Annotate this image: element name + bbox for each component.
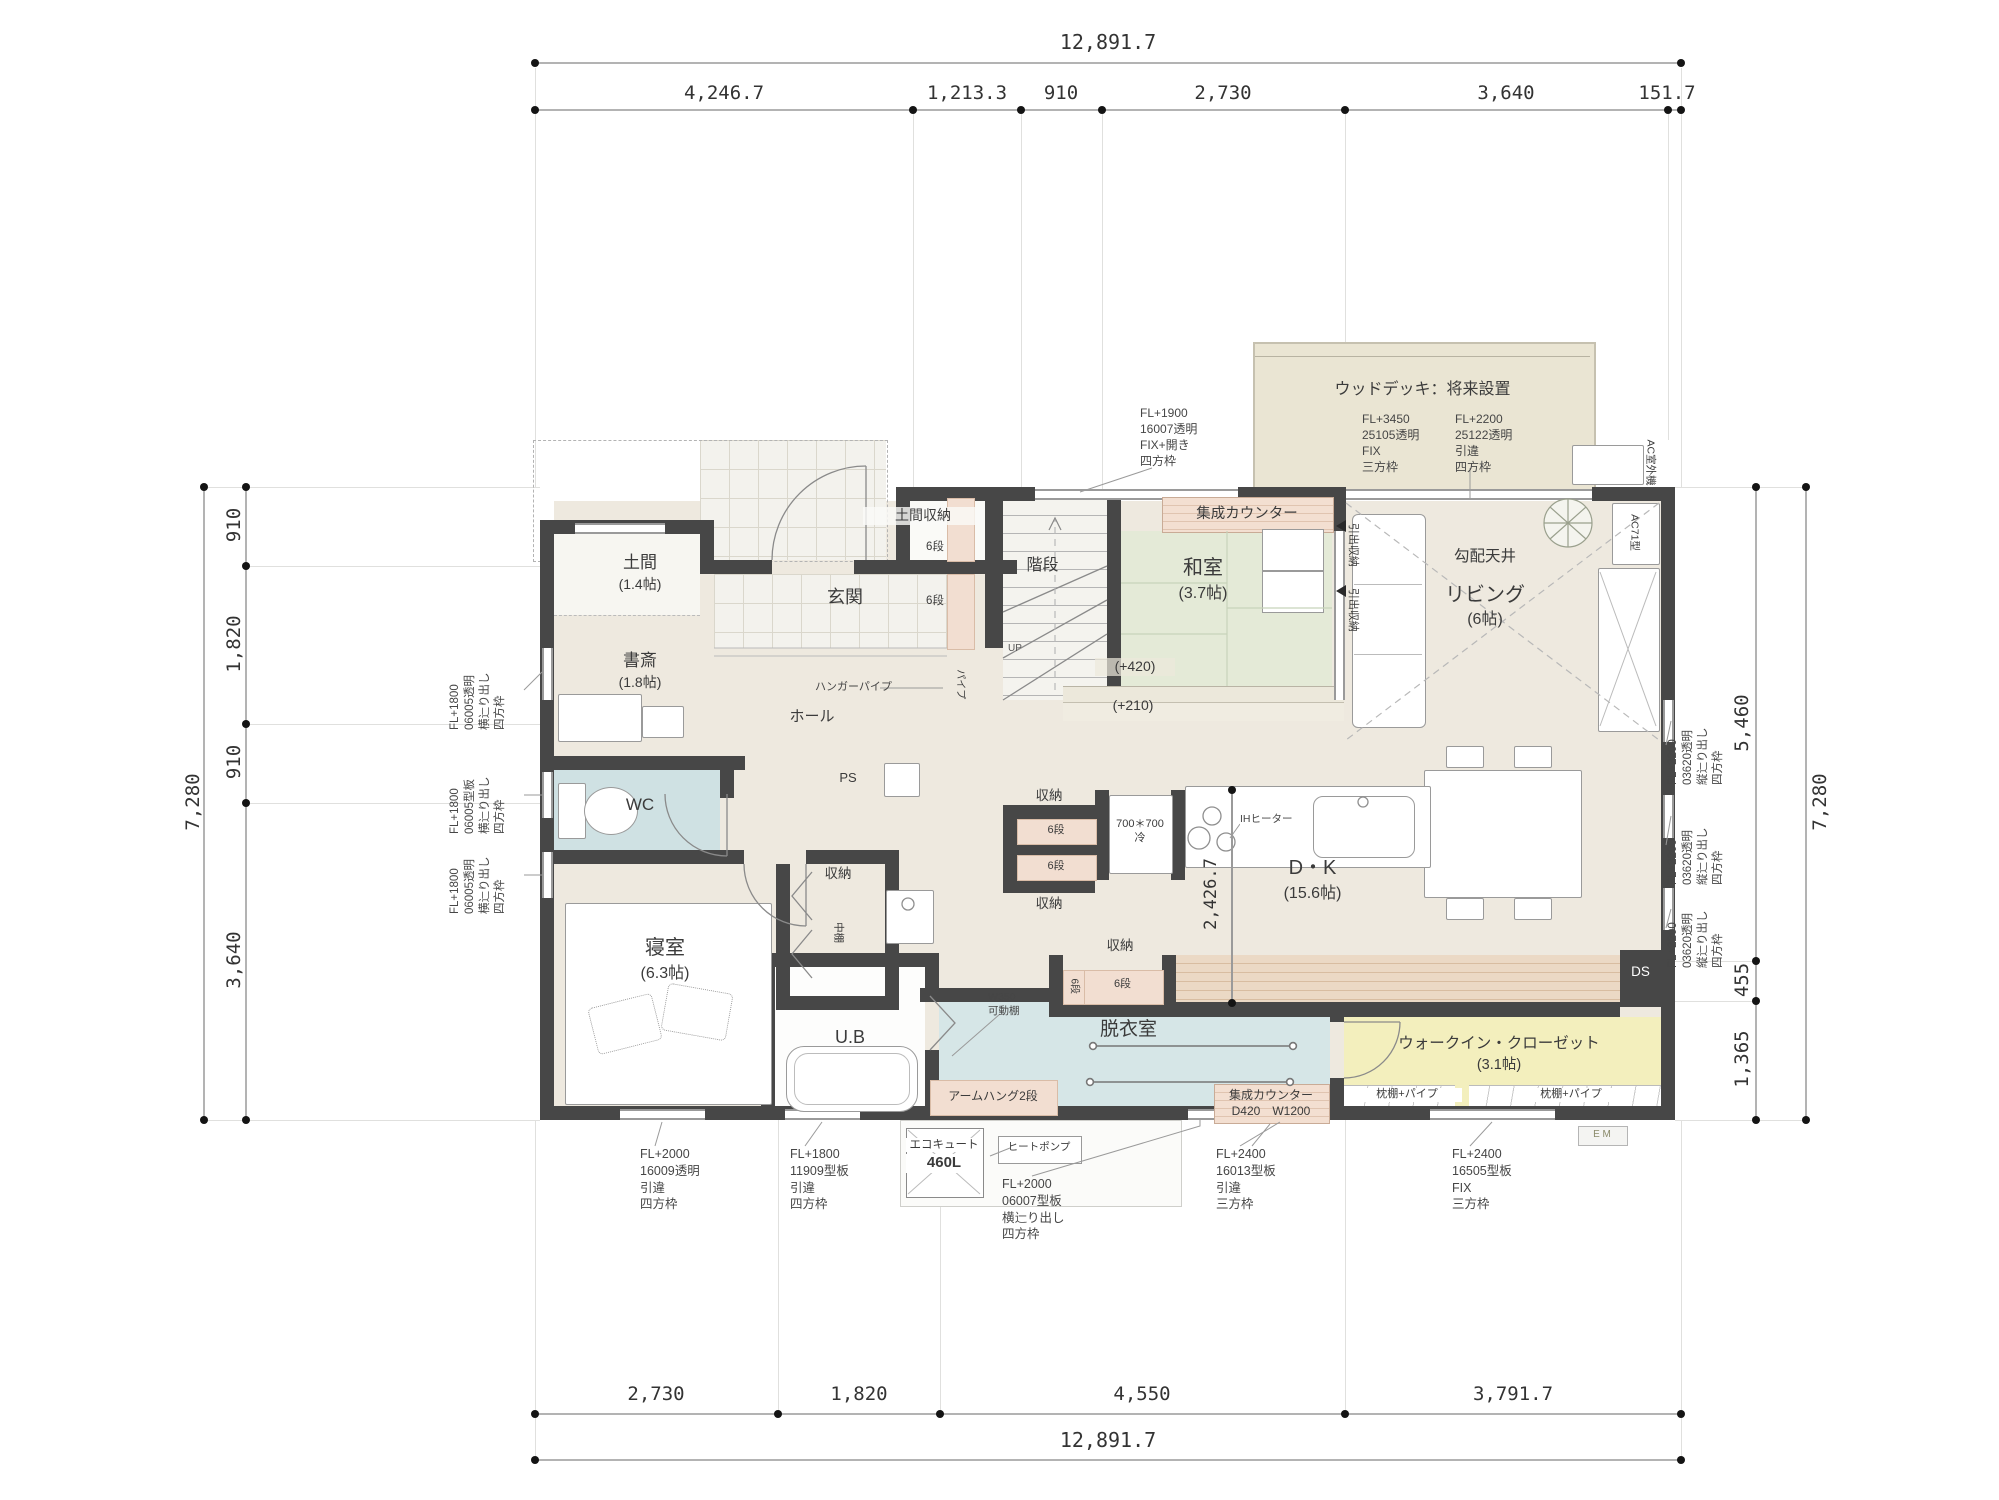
dim-dot [1228,786,1236,794]
window-ann-bottom-3: FL+2000 06007型板 横辷り出し 四方枠 [1002,1176,1065,1243]
naka-shelf-label: 中棚 [831,911,844,955]
deck-window-fix: FL+3450 25105透明 FIX 三方枠 [1362,411,1419,475]
sink-faucet [1358,797,1368,807]
stove-burner-1 [1203,807,1221,825]
closet-bifold-2 [792,930,812,978]
window-ann-bottom-4: FL+2400 16013型板 引違 三方枠 [1216,1146,1276,1213]
drawer-label-2: 引出収納 [1345,582,1359,638]
level-420-label: (+420) [1095,658,1175,676]
ecocute-size: 460L [906,1154,982,1173]
study-label: 書斎 [580,650,700,671]
ac-outdoor-label: AC室外機 [1643,425,1656,501]
heatpump-label: ヒートポンプ [998,1141,1080,1154]
shelf6-doma-storage: 6段 [905,540,965,554]
bedroom-door-arc [744,864,806,926]
leader-w350 [952,1014,1000,1056]
pillow-shelf-right: 枕棚+パイプ [1516,1088,1626,1102]
ecocute-label: エコキュート [906,1138,982,1152]
datsui-label: 脱衣室 [1056,1018,1201,1042]
shelf6-pantry-side: 6段 [1067,969,1080,1003]
doma-size: (1.4帖) [580,576,700,594]
ih-label: IHヒーター [1240,812,1293,826]
hanger-pipe-label: ハンガーパイプ [815,680,892,695]
washitsu-size: (3.7帖) [1143,584,1263,604]
pipe-label: パイプ [953,661,966,707]
shelf6-kitchen-2: 6段 [1017,860,1095,874]
dim-dot [1228,999,1236,1007]
ac-unit-label: AC71型 [1627,505,1640,561]
shelf6-kitchen-1: 6段 [1017,824,1095,838]
level-210-label: (+210) [1093,697,1173,715]
dk-label: D・K [1240,856,1385,881]
window-ann-right-2: FL+2200 03620透明 縦辷り出し 四方枠 [1666,805,1734,885]
genkan-label: 玄関 [785,586,905,609]
pillow-shelf-left: 枕棚+パイプ [1352,1088,1462,1102]
window-ann-left-2: FL+1800 06005型板 横辷り出し 四方枠 [448,754,516,834]
w350-label: W350 可動棚 [988,990,1020,1018]
living-size: (6帖) [1400,610,1570,630]
ps-label: PS [828,770,868,786]
plant-icon [1544,499,1592,547]
storage-bedroom: 収納 [798,866,878,883]
shelf6-coat: 6段 [905,594,965,608]
storage-kitchen-bottom: 収納 [1009,896,1089,913]
storage-pantry: 収納 [1080,938,1160,955]
window-ann-bottom-2: FL+1800 11909型板 引違 四方枠 [790,1146,849,1213]
dim-kitchen-label: 2,426.7 [1201,844,1221,944]
window-ann-left-1: FL+1800 06005透明 横辷り出し 四方枠 [448,650,516,730]
bedroom-label: 寝室 [595,936,735,961]
window-ann-bottom-1: FL+2000 16009透明 引違 四方枠 [640,1146,700,1213]
leader-top-stair [1080,468,1152,492]
doma-label: 土間 [580,552,700,573]
deck-window-slide: FL+2200 25122透明 引違 四方枠 [1455,411,1512,475]
leader-bottom-4 [1240,1122,1280,1146]
slope-ceiling-label: 勾配天井 [1410,547,1560,566]
dim-line-kitchen [1231,790,1233,1003]
floor-plan-canvas: 12,891.7 4,246.7 1,213.3 910 2,730 3,640… [0,0,1999,1500]
vanity-faucet [902,898,914,910]
entrance-door-arc [772,466,866,560]
window-ann-top-stair: FL+1900 16007透明 FIX+開き 四方枠 [1140,405,1197,469]
window-ann-right-3: FL+2200 03620透明 縦辷り出し 四方枠 [1666,888,1734,968]
study-size: (1.8帖) [580,674,700,692]
bedroom-size: (6.3帖) [595,964,735,984]
living-label: リビング [1400,583,1570,608]
washitsu-label: 和室 [1143,556,1263,581]
doma-storage-label: 土間収納 [863,507,983,525]
window-ann-bottom-5: FL+2400 16505型板 FIX 三方枠 [1452,1146,1512,1213]
dk-size: (15.6帖) [1240,884,1385,904]
window-ann-right-1: FL+2200 03620透明 縦辷り出し 四方枠 [1666,705,1734,785]
ub-label: U.B [798,1026,902,1049]
leader-bottom-1 [655,1122,662,1146]
leader-left-1 [524,672,542,690]
deck-title: ウッドデッキ：将来設置 [1300,380,1545,400]
hall-label: ホール [762,708,862,727]
fridge-label: 700＊700 冷 [1110,818,1170,846]
shelf6-pantry: 6段 [1085,978,1160,992]
wic-label: ウォークイン・クローゼット [1344,1034,1654,1053]
storage-kitchen-top: 収納 [1009,788,1089,805]
window-ann-left-3: FL+1800 06005透明 横辷り出し 四方枠 [448,834,516,914]
drawer-label-1: 引出収納 [1345,517,1359,573]
ub-bifold-door [930,996,955,1050]
stairs-label: 階段 [995,556,1090,576]
wc-label: WC [590,794,690,815]
leader-counter2 [1252,1124,1270,1146]
leader-bottom-5 [1470,1122,1492,1146]
leader-bottom-2 [805,1122,822,1146]
wic-size: (3.1帖) [1344,1056,1654,1074]
up-label: UP [1000,643,1030,656]
